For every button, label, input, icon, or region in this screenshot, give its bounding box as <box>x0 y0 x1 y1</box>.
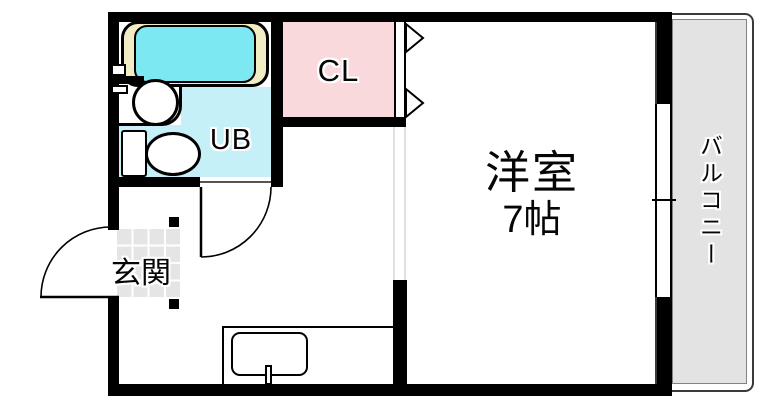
kitchen-faucet-icon <box>265 365 272 385</box>
wall-partition <box>393 280 407 396</box>
entrance-step-marker <box>169 299 179 309</box>
sliding-window-icon <box>655 104 672 297</box>
main-room-label: 洋室 7帖 <box>432 148 632 242</box>
bathtub-water <box>134 25 256 83</box>
entrance-label: 玄関 <box>91 248 191 292</box>
folding-door-icon <box>406 24 423 52</box>
wall-closet-bottom <box>271 117 406 127</box>
wall-unit-bath-bottom <box>108 177 200 187</box>
closet-door-frame <box>394 22 406 117</box>
main-room-name: 洋室 <box>432 148 632 198</box>
wall-bottom <box>108 384 672 396</box>
wall-left-upper <box>108 12 119 229</box>
bath-faucet-knob <box>111 64 126 76</box>
room-boundary-line <box>404 127 406 280</box>
balcony-label: バルコニー <box>672 19 747 384</box>
wall-right-upper <box>657 12 672 104</box>
wall-top <box>108 12 672 22</box>
closet-label: CL <box>283 53 394 89</box>
unit-bath-label: UB <box>181 124 281 157</box>
wall-unit-bath-corner <box>271 177 283 187</box>
room-boundary-line <box>393 127 395 280</box>
folding-door-icon <box>406 89 423 117</box>
bath-faucet-icon <box>115 76 144 84</box>
wall-left-lower <box>108 297 119 396</box>
unit-bath-door-swing-arc <box>201 187 271 257</box>
floor-plan: CL UB 玄関 洋室 7帖 バルコニー <box>0 0 784 406</box>
bath-faucet-knob <box>111 85 128 94</box>
wall-right-lower <box>657 297 672 396</box>
washbasin-icon <box>132 79 179 126</box>
wall-bathroom-right <box>271 12 283 187</box>
main-room-size: 7帖 <box>432 198 632 242</box>
entrance-door-jamb <box>108 228 119 230</box>
unit-bath-door-threshold-line <box>200 181 271 183</box>
toilet-tank <box>121 130 147 177</box>
entrance-step-marker <box>169 217 179 227</box>
